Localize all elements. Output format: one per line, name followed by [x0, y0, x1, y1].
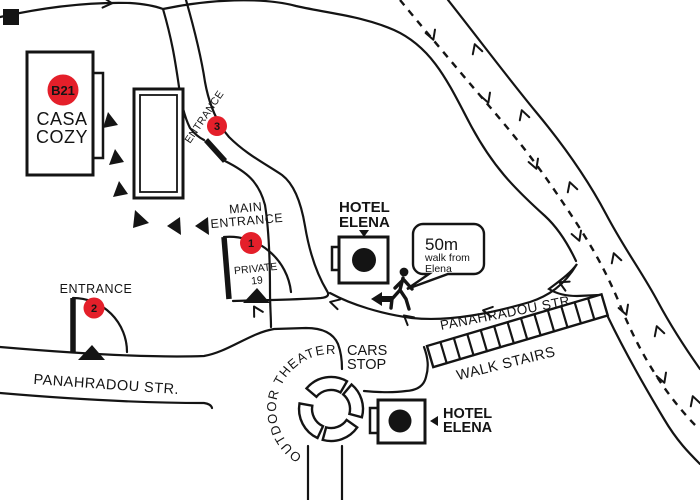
private-label-line2: 19	[251, 274, 264, 287]
pedestrian-body	[391, 278, 412, 309]
entrance-2: ENTRANCE 2	[60, 282, 133, 360]
main-entrance-arrow-icon	[243, 288, 270, 303]
entrance-3-gate	[206, 140, 225, 161]
distance-callout: 50m walk from Elena	[407, 224, 484, 289]
entrance-2-label: ENTRANCE	[60, 282, 133, 296]
trail-arrow-icon	[109, 149, 124, 165]
trail-arrow-icon	[113, 181, 128, 197]
cars-stop-label-line2: STOP	[347, 357, 386, 373]
hotel-elena-top: HOTEL ELENA H	[332, 199, 390, 283]
theater-arc-segment	[323, 420, 358, 441]
chevron-icon	[565, 181, 577, 193]
trail-arrow-icon	[103, 112, 118, 128]
pedestrian-icon	[400, 268, 409, 277]
theater-arc-segment	[343, 385, 363, 418]
road-west-south-border	[0, 393, 212, 408]
pool-building	[134, 89, 183, 198]
b21-badge-label: B21	[51, 83, 75, 98]
callout-line3: Elena	[425, 263, 452, 275]
hotel-bottom-h-symbol: H	[395, 414, 405, 429]
trail-arrow-icon	[133, 210, 149, 228]
panahradou-street-left-label: PANAHRADOU STR.	[33, 372, 180, 398]
hotel-top-h-symbol: H	[359, 252, 369, 268]
casa-cozy-name-line1: CASA	[36, 109, 87, 129]
trail-arrow-icon	[167, 217, 181, 235]
chevron-icon	[657, 373, 669, 385]
chevron-icon	[652, 325, 664, 337]
chevron-icon	[688, 395, 700, 407]
directions-map: B21 CASA COZY ENTRANCE 3 MAIN ENTRANCE 1…	[0, 0, 700, 500]
main-entrance-number: 1	[248, 238, 254, 250]
highway-left-border-lower	[608, 317, 700, 464]
road-south-of-roundabout	[308, 446, 342, 500]
chevron-icon	[609, 252, 621, 264]
main-entrance: MAIN ENTRANCE 1 PRIVATE 19	[209, 198, 291, 303]
map-canvas: B21 CASA COZY ENTRANCE 3 MAIN ENTRANCE 1…	[0, 0, 700, 500]
chevron-icon	[329, 297, 340, 309]
chevron-icon	[250, 304, 263, 317]
map-corner-marker	[3, 9, 19, 25]
chevron-icon	[470, 43, 482, 55]
road-vertical-right-border	[186, 0, 328, 301]
theater-arc-segment	[299, 403, 323, 438]
entrance-3-number: 3	[214, 121, 220, 133]
chevron-icon	[572, 231, 584, 243]
entrance-2-number: 2	[91, 303, 97, 315]
pool-inner-outline	[140, 95, 177, 192]
hotel-bottom-name-line2: ELENA	[443, 420, 493, 436]
hotel-elena-bottom: H HOTEL ELENA	[370, 400, 493, 443]
chevron-icon	[481, 93, 493, 105]
chevron-icon	[557, 278, 569, 291]
pointer-left-icon	[430, 416, 438, 426]
main-entrance-label-line2: ENTRANCE	[210, 211, 284, 231]
chevron-icon	[517, 109, 529, 121]
theater-arc-segment	[307, 377, 348, 397]
walk-direction-arrow-icon	[371, 292, 393, 306]
casa-cozy-name-line2: COZY	[36, 127, 88, 147]
trail-arrow-icon	[195, 217, 209, 235]
casa-cozy-building: B21 CASA COZY	[3, 9, 103, 175]
hotel-top-name-line2: ELENA	[339, 214, 390, 231]
main-entrance-gate	[224, 237, 229, 299]
